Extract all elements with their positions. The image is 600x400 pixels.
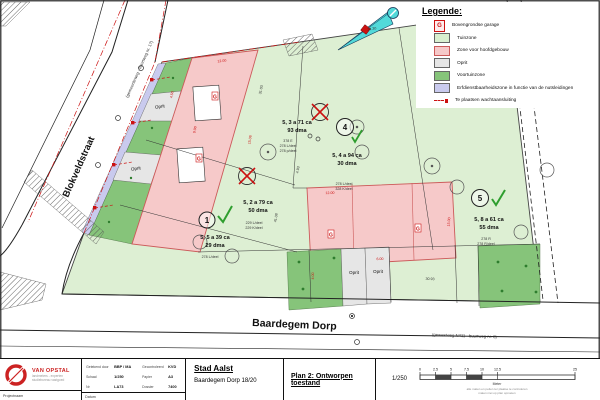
- oprit-swatch: [434, 58, 450, 68]
- legend-item-oprit: Oprit: [434, 59, 594, 68]
- company-name: VAN OPSTAL: [32, 368, 70, 374]
- svg-text:0: 0: [419, 367, 421, 371]
- svg-text:50 dma: 50 dma: [248, 208, 268, 214]
- scale-bar: 1/250 0 2.5 5 7.5 10 12.5 25: [390, 363, 600, 397]
- svg-text:1: 1: [205, 216, 210, 225]
- svg-text:278 R/deel: 278 R/deel: [477, 242, 495, 246]
- project-panel: Stad Aalst Baardegem Dorp 18/20: [186, 359, 284, 400]
- svg-text:30.93: 30.93: [425, 277, 434, 281]
- legend-item-garage: G Bovengrondse garage: [434, 21, 594, 30]
- svg-text:4.00: 4.00: [311, 272, 315, 279]
- svg-text:G: G: [416, 227, 420, 233]
- road-label-bottom: Baardegem Dorp: [252, 317, 337, 333]
- svg-text:5: 5: [478, 194, 483, 203]
- legend-item-wachtaansluiting: Te plaatsen wachtaansluiting: [434, 96, 594, 105]
- svg-text:55 dma: 55 dma: [479, 225, 499, 231]
- svg-text:G: G: [213, 95, 217, 101]
- garage-icon: G: [212, 92, 218, 101]
- svg-text:G: G: [197, 157, 201, 163]
- svg-text:12.00: 12.00: [325, 191, 334, 195]
- oprit-label: Oprit: [373, 269, 384, 274]
- svg-text:328 K/deel: 328 K/deel: [335, 187, 352, 191]
- road-sublabel-bottom: (gewestweg N411 - buurtweg nr. 8): [432, 332, 498, 339]
- svg-text:378 E: 378 E: [283, 139, 293, 143]
- svg-text:278 p/deel: 278 p/deel: [280, 149, 297, 153]
- garage-icon: G: [196, 154, 202, 163]
- voortuinzone-swatch: [434, 71, 450, 81]
- svg-text:5: 5: [450, 367, 452, 371]
- company-panel: VAN OPSTAL landmeters - experten studieb…: [0, 359, 82, 400]
- svg-text:2.5: 2.5: [433, 367, 438, 371]
- svg-text:15.00: 15.00: [447, 217, 452, 226]
- city-name: Stad Aalst: [194, 364, 283, 373]
- svg-text:12.5: 12.5: [494, 367, 501, 371]
- plan-title-panel: Plan 2: Ontworpen toestand: [284, 359, 376, 400]
- scale-unit: Meter: [493, 382, 503, 386]
- svg-text:6.00: 6.00: [376, 257, 383, 261]
- svg-text:G: G: [329, 233, 333, 239]
- garage-footprint: [193, 85, 221, 121]
- garage-icon: G: [328, 230, 334, 239]
- garage-footprint: [177, 147, 205, 183]
- scale-note: maten niet op plan opmeten: [478, 391, 516, 395]
- svg-text:7.5: 7.5: [464, 367, 469, 371]
- svg-text:5, 2 a 79 ca: 5, 2 a 79 ca: [243, 200, 273, 206]
- tuinzone-swatch: [434, 33, 450, 43]
- scale-panel: 1/250 0 2.5 5 7.5 10 12.5 25: [376, 359, 600, 400]
- svg-text:5, 3 a 71 ca: 5, 3 a 71 ca: [282, 120, 312, 126]
- svg-text:278 L/deel: 278 L/deel: [336, 182, 353, 186]
- svg-text:229 L/deel: 229 L/deel: [246, 221, 263, 225]
- oprit-cell: [341, 248, 367, 306]
- legend-item-tuinzone: Tuinzone: [434, 34, 594, 43]
- wachtaansluiting-icon: [434, 97, 448, 105]
- svg-text:10: 10: [480, 367, 484, 371]
- svg-text:5, 4 a 94 ca: 5, 4 a 94 ca: [332, 153, 362, 159]
- footer-label: Datum: [85, 395, 96, 399]
- svg-text:5, 8 a 61 ca: 5, 8 a 61 ca: [474, 217, 504, 223]
- project-name: Baardegem Dorp 18/20: [194, 378, 283, 384]
- svg-text:278 R: 278 R: [481, 237, 491, 241]
- footer-label: Projectnaam: [3, 394, 23, 398]
- title-block: VAN OPSTAL landmeters - experten studieb…: [0, 358, 600, 400]
- svg-text:29 dma: 29 dma: [205, 243, 225, 249]
- svg-text:30 dma: 30 dma: [337, 161, 357, 167]
- legend-item-hoofdgebouw: Zone voor hoofdgebouw: [434, 46, 594, 55]
- erfdienstbaarheid-swatch: [434, 83, 450, 93]
- road-label-left: Blokveldstraat: [61, 134, 98, 199]
- oprit-cell: [365, 247, 391, 304]
- company-logo-icon: [3, 362, 29, 388]
- company-subline: studiebureau vastgoed: [32, 378, 70, 382]
- svg-text:278 L/deel: 278 L/deel: [280, 144, 297, 148]
- plan-title: Plan 2: Ontworpen toestand: [291, 373, 375, 387]
- drawing-meta-panel: Getekend door BBP / MA Gecontroleerd KVD…: [82, 359, 186, 400]
- legend: Legende: G Bovengrondse garage Tuinzone …: [416, 2, 596, 108]
- svg-text:4: 4: [343, 123, 348, 132]
- oprit-label: Oprit: [349, 270, 360, 275]
- svg-text:93 dma: 93 dma: [287, 128, 307, 134]
- legend-item-erfdienstbaarheid: Erfdienstbaarheidszone in functie van de…: [434, 84, 594, 93]
- plan-sheet: G G G G: [0, 0, 600, 400]
- legend-item-voortuinzone: Voortuinzone: [434, 71, 594, 80]
- svg-text:5, 5 a 39 ca: 5, 5 a 39 ca: [200, 235, 230, 241]
- svg-text:25: 25: [573, 367, 577, 371]
- legend-title: Legende:: [422, 6, 594, 16]
- garage-icon: G: [415, 224, 421, 233]
- hoofdgebouw-swatch: [434, 46, 450, 56]
- garage-icon: G: [434, 20, 445, 32]
- svg-text:229 K/deel: 229 K/deel: [245, 226, 262, 230]
- svg-text:278 L/deel: 278 L/deel: [202, 255, 219, 259]
- scale-ratio: 1/250: [392, 376, 408, 382]
